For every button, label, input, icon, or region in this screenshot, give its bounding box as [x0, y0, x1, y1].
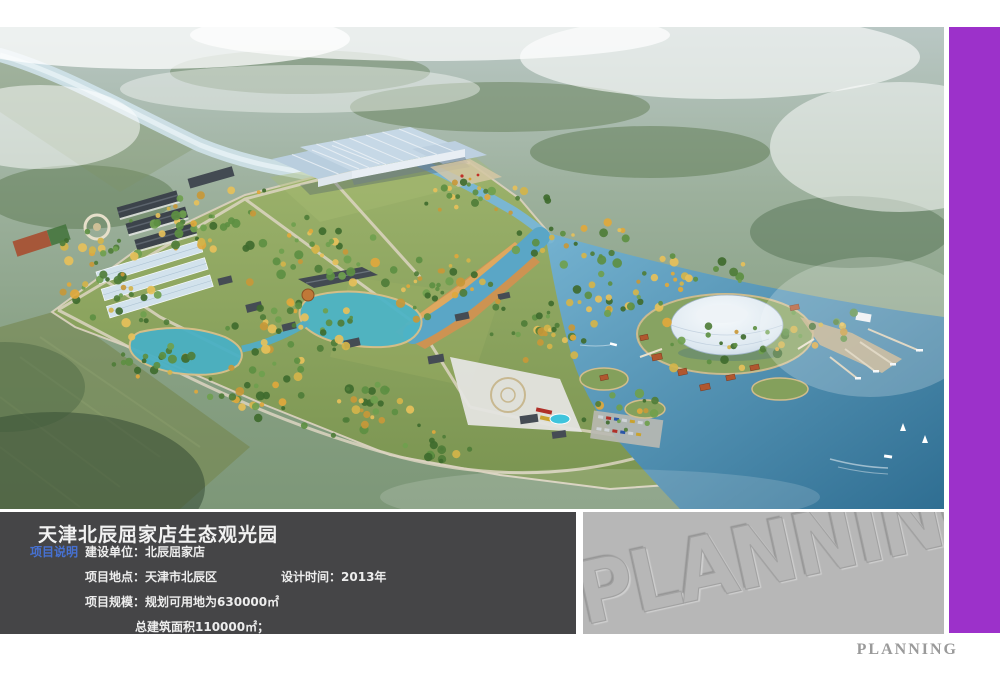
- info-row-location: 项目地点：天津市北辰区 设计时间：2013年: [0, 568, 576, 584]
- swimming-pool: [550, 414, 570, 424]
- aerial-rendering: [0, 27, 944, 509]
- location-value: 天津市北辰区: [145, 570, 217, 584]
- client-value: 北辰屈家店: [145, 545, 205, 559]
- info-row-scale-2: 总建筑面积110000㎡；: [0, 618, 576, 634]
- client-label: 建设单位：: [85, 545, 145, 559]
- scale-value: 规划可用地为630000㎡: [145, 595, 279, 609]
- design-time-label: 设计时间：: [281, 570, 341, 584]
- info-row-scale: 项目规模：规划可用地为630000㎡: [0, 593, 576, 609]
- scale-line: 项目规模：规划可用地为630000㎡: [85, 593, 279, 610]
- design-time-value: 2013年: [341, 570, 386, 584]
- section-label: 项目说明: [30, 543, 78, 560]
- park-scene-svg: [0, 27, 944, 509]
- scale-line-2: 总建筑面积110000㎡；: [135, 618, 269, 635]
- accent-bar: [949, 27, 1000, 633]
- info-row-client: 项目说明 建设单位：北辰屈家店: [0, 543, 576, 559]
- client-line: 建设单位：北辰屈家店: [85, 543, 205, 560]
- watermark-panel: PLANNING: [583, 512, 944, 634]
- footer-planning-text: PLANNING: [857, 641, 958, 659]
- presentation-board: 天津北辰屈家店生态观光园 项目说明 建设单位：北辰屈家店 项目地点：天津市北辰区…: [0, 0, 1000, 678]
- design-time-line: 设计时间：2013年: [281, 568, 386, 585]
- project-info-panel: 天津北辰屈家店生态观光园 项目说明 建设单位：北辰屈家店 项目地点：天津市北辰区…: [0, 512, 576, 634]
- location-label: 项目地点：: [85, 570, 145, 584]
- location-line: 项目地点：天津市北辰区: [85, 568, 217, 585]
- planning-watermark: PLANNING: [583, 512, 944, 634]
- scale-label: 项目规模：: [85, 595, 145, 609]
